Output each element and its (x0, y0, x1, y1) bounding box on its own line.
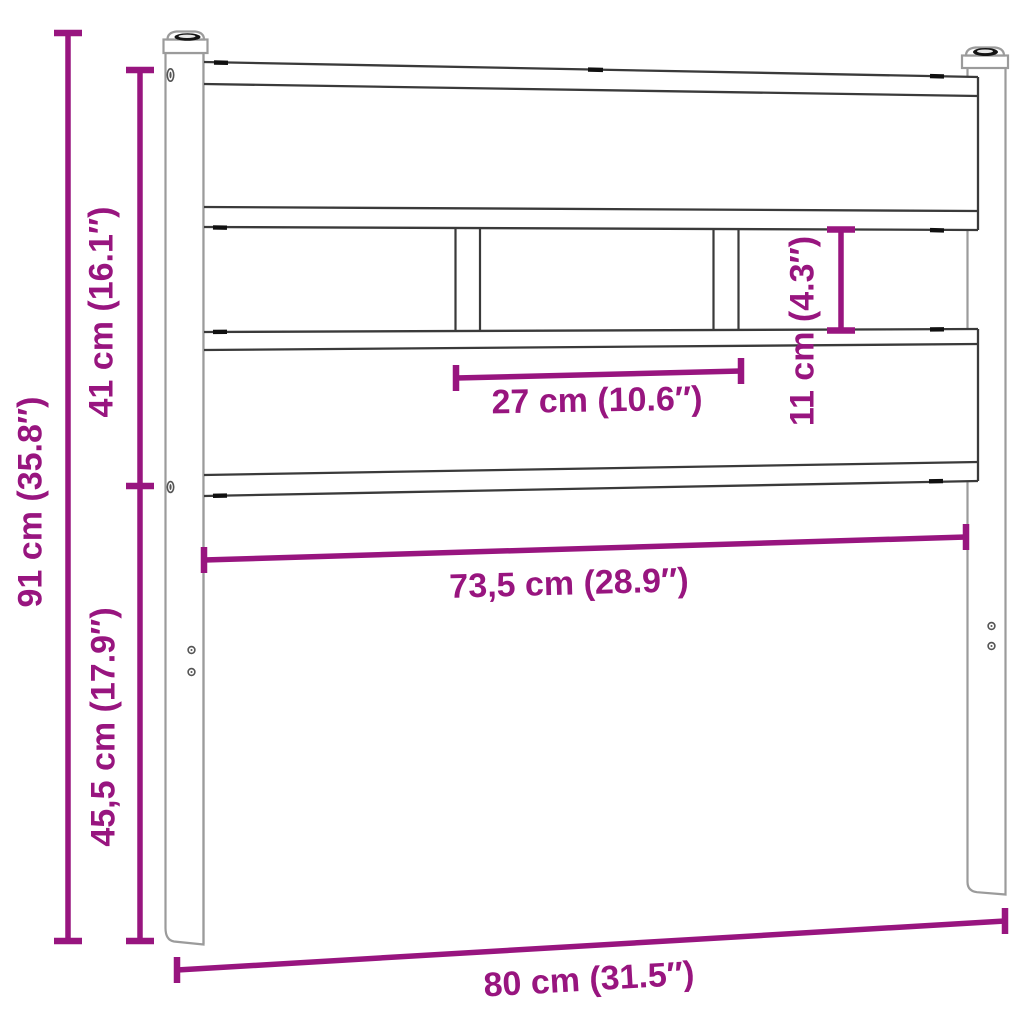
label-slat-opening-width: 27 cm (10.6″) (491, 380, 703, 423)
left-post-finial-highlight (179, 35, 196, 38)
right-post-cap-body (962, 56, 1008, 69)
headboard-line-drawing (0, 0, 1024, 1024)
dim-panel-and-leg-height (126, 70, 154, 941)
label-slat-opening-height: 11 cm (4.3″) (784, 236, 823, 426)
left-post-cap-body (164, 40, 208, 54)
right-post-finial-highlight (977, 50, 993, 54)
label-overall-height: 91 cm (35.8″) (12, 397, 51, 608)
headboard-dimension-diagram: 91 cm (35.8″) 41 cm (16.1″) 45,5 cm (17.… (0, 0, 1024, 1024)
label-panel-height: 41 cm (16.1″) (83, 207, 122, 418)
label-leg-height: 45,5 cm (17.9″) (85, 607, 124, 846)
left-post-body (166, 53, 204, 945)
rail-area-mask (204, 62, 978, 496)
dim-overall-height (54, 33, 82, 941)
label-inner-width: 73,5 cm (28.9″) (449, 561, 689, 607)
